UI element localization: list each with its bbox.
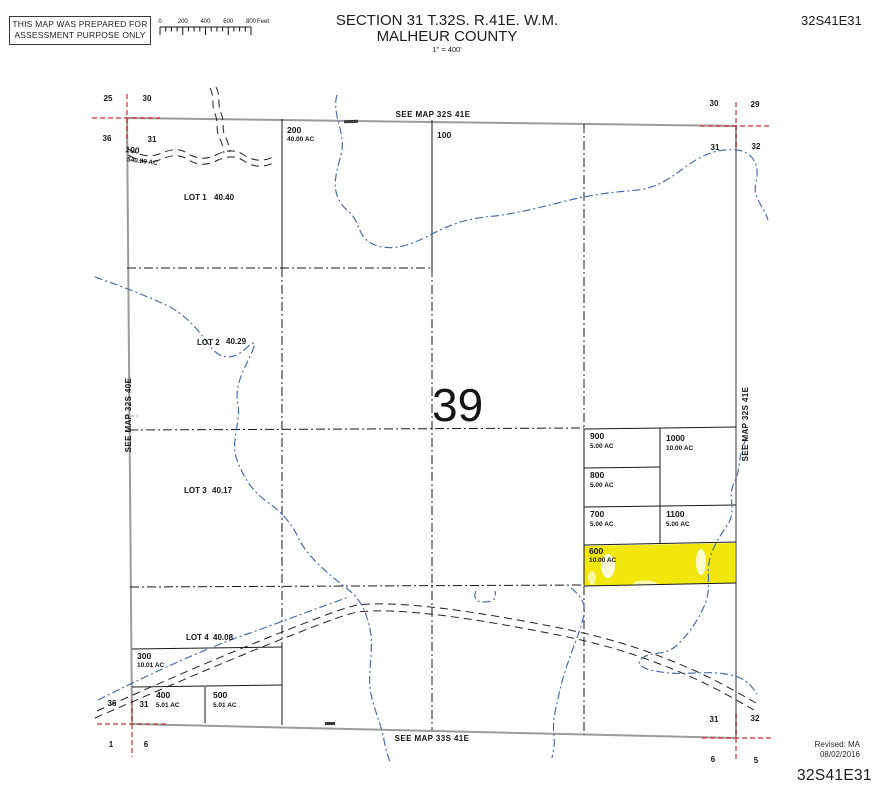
scale-bar [160, 27, 251, 35]
parcel-100-acreage: 540.89 AC [127, 156, 159, 167]
corner-br-nw: 31 [710, 715, 719, 724]
revision-block: Revised: MA 08/02/2016 [760, 740, 860, 759]
parcel-1000-acreage: 10.00 AC [666, 445, 694, 452]
parcel-500-number: 500 [213, 690, 227, 700]
map-id-bottom-right: 32S41E31 [797, 767, 872, 785]
map-title: SECTION 31 T.32S. R.41E. W.M. [277, 13, 617, 29]
parcel-700-acreage: 5.00 AC [590, 521, 614, 528]
title-block: SECTION 31 T.32S. R.41E. W.M. MALHEUR CO… [277, 13, 617, 54]
scale-label-800: 800 [246, 19, 257, 25]
corner-bl-sw: 1 [109, 740, 114, 749]
parcel-100-number: 100 [125, 144, 141, 156]
disclaimer-line1: THIS MAP WAS PREPARED FOR [10, 19, 150, 30]
road-south-edge-2 [95, 611, 754, 718]
lot4-acreage: 40.08 [213, 633, 234, 642]
corner-br-se: 5 [754, 756, 759, 765]
lot1-label: LOT 1 [184, 193, 207, 202]
parcel-1100-number: 1100 [666, 509, 685, 519]
parcel-900-acreage: 5.00 AC [590, 443, 614, 450]
corner-tr-ne: 29 [751, 100, 760, 109]
corner-tr-se: 32 [752, 142, 761, 151]
parcel-labels: 100 540.89 AC 200 40.00 AC 100 900 5.00 … [124, 125, 694, 709]
corner-tl-se: 31 [148, 135, 157, 144]
corner-br-sw: 6 [711, 755, 716, 764]
stream-south-central [552, 588, 584, 758]
corner-tr-sw: 31 [711, 143, 720, 152]
parcel-900-number: 900 [590, 431, 604, 441]
revision-date: 08/02/2016 [760, 750, 860, 760]
parcel-400-acreage: 5.01 AC [156, 702, 180, 709]
scale-label-600: 600 [223, 19, 234, 25]
scale-bar-labels: 0 200 400 600 800 Feet [158, 19, 269, 25]
parcel-600-number: 600 [589, 546, 603, 556]
parcel-200-number: 200 [287, 125, 301, 135]
stream-pond [475, 591, 496, 602]
edge-label-right: SEE MAP 32S 41E [741, 386, 750, 461]
assessment-map: 0 200 400 600 800 Feet SEE MAP 32S 41E S… [0, 0, 885, 805]
parcel-800-acreage: 5.00 AC [590, 482, 614, 489]
parcel-700-number: 700 [590, 509, 604, 519]
disclaimer-box: THIS MAP WAS PREPARED FOR ASSESSMENT PUR… [9, 16, 151, 45]
lot-labels: LOT 1 40.40 LOT 2 40.29 LOT 3 40.17 LOT … [184, 193, 247, 642]
corner-tr-nw: 30 [710, 99, 719, 108]
edge-label-bottom: SEE MAP 33S 41E [395, 734, 470, 743]
parcel-500-acreage: 5.01 AC [213, 702, 237, 709]
lot4-label: LOT 4 [186, 633, 209, 642]
corner-tl-sw: 36 [103, 134, 112, 143]
parcel-400-number: 400 [156, 690, 170, 700]
corner-br-ne: 32 [751, 714, 760, 723]
lot2-acreage: 40.29 [226, 337, 247, 346]
quarter-section-lines [127, 124, 584, 735]
scale-unit-label: Feet [257, 19, 269, 25]
revision-label: Revised: MA [760, 740, 860, 750]
scale-bar-major-ticks [160, 27, 251, 35]
scale-label-200: 200 [178, 19, 189, 25]
corner-tl-nw: 25 [104, 94, 113, 103]
parcel-100-center-number: 100 [437, 130, 451, 140]
road-south-edge-1 [97, 604, 756, 711]
lot2-label: LOT 2 [197, 338, 220, 347]
lot1-acreage: 40.40 [214, 193, 235, 202]
lot3-acreage: 40.17 [212, 486, 233, 495]
lot3-label: LOT 3 [184, 486, 207, 495]
tax-code-area-number: 39 [432, 379, 483, 431]
tiny-annotations [325, 120, 358, 725]
parcel-600-acreage: 10.00 AC [589, 557, 617, 564]
parcel-800-number: 800 [590, 470, 604, 480]
parcel-300-acreage: 10.01 AC [137, 662, 165, 669]
corner-tl-ne: 30 [143, 94, 152, 103]
corner-bl-nw: 36 [108, 699, 117, 708]
parcel-300-number: 300 [137, 651, 151, 661]
corner-bl-ne: 31 [140, 700, 149, 709]
assessment-map-page: 0 200 400 600 800 Feet SEE MAP 32S 41E S… [0, 0, 885, 805]
map-county: MALHEUR COUNTY [277, 29, 617, 44]
edge-label-left: SEE MAP 32S 40E [124, 377, 133, 452]
parcel-200-acreage: 40.00 AC [287, 136, 315, 143]
stream-west [95, 277, 390, 762]
parcel-1000-number: 1000 [666, 433, 685, 443]
edge-label-top: SEE MAP 32S 41E [396, 110, 471, 119]
trail-north-spur-1 [210, 88, 224, 153]
corner-bl-se: 6 [144, 740, 149, 749]
parcel-1100-acreage: 5.00 AC [666, 521, 690, 528]
map-scale-note: 1" = 400' [277, 45, 617, 54]
scale-label-0: 0 [158, 19, 162, 25]
map-id-top-right: 32S41E31 [801, 13, 862, 28]
roads [95, 87, 756, 718]
disclaimer-line2: ASSESSMENT PURPOSE ONLY [10, 30, 150, 41]
scale-label-400: 400 [200, 19, 211, 25]
